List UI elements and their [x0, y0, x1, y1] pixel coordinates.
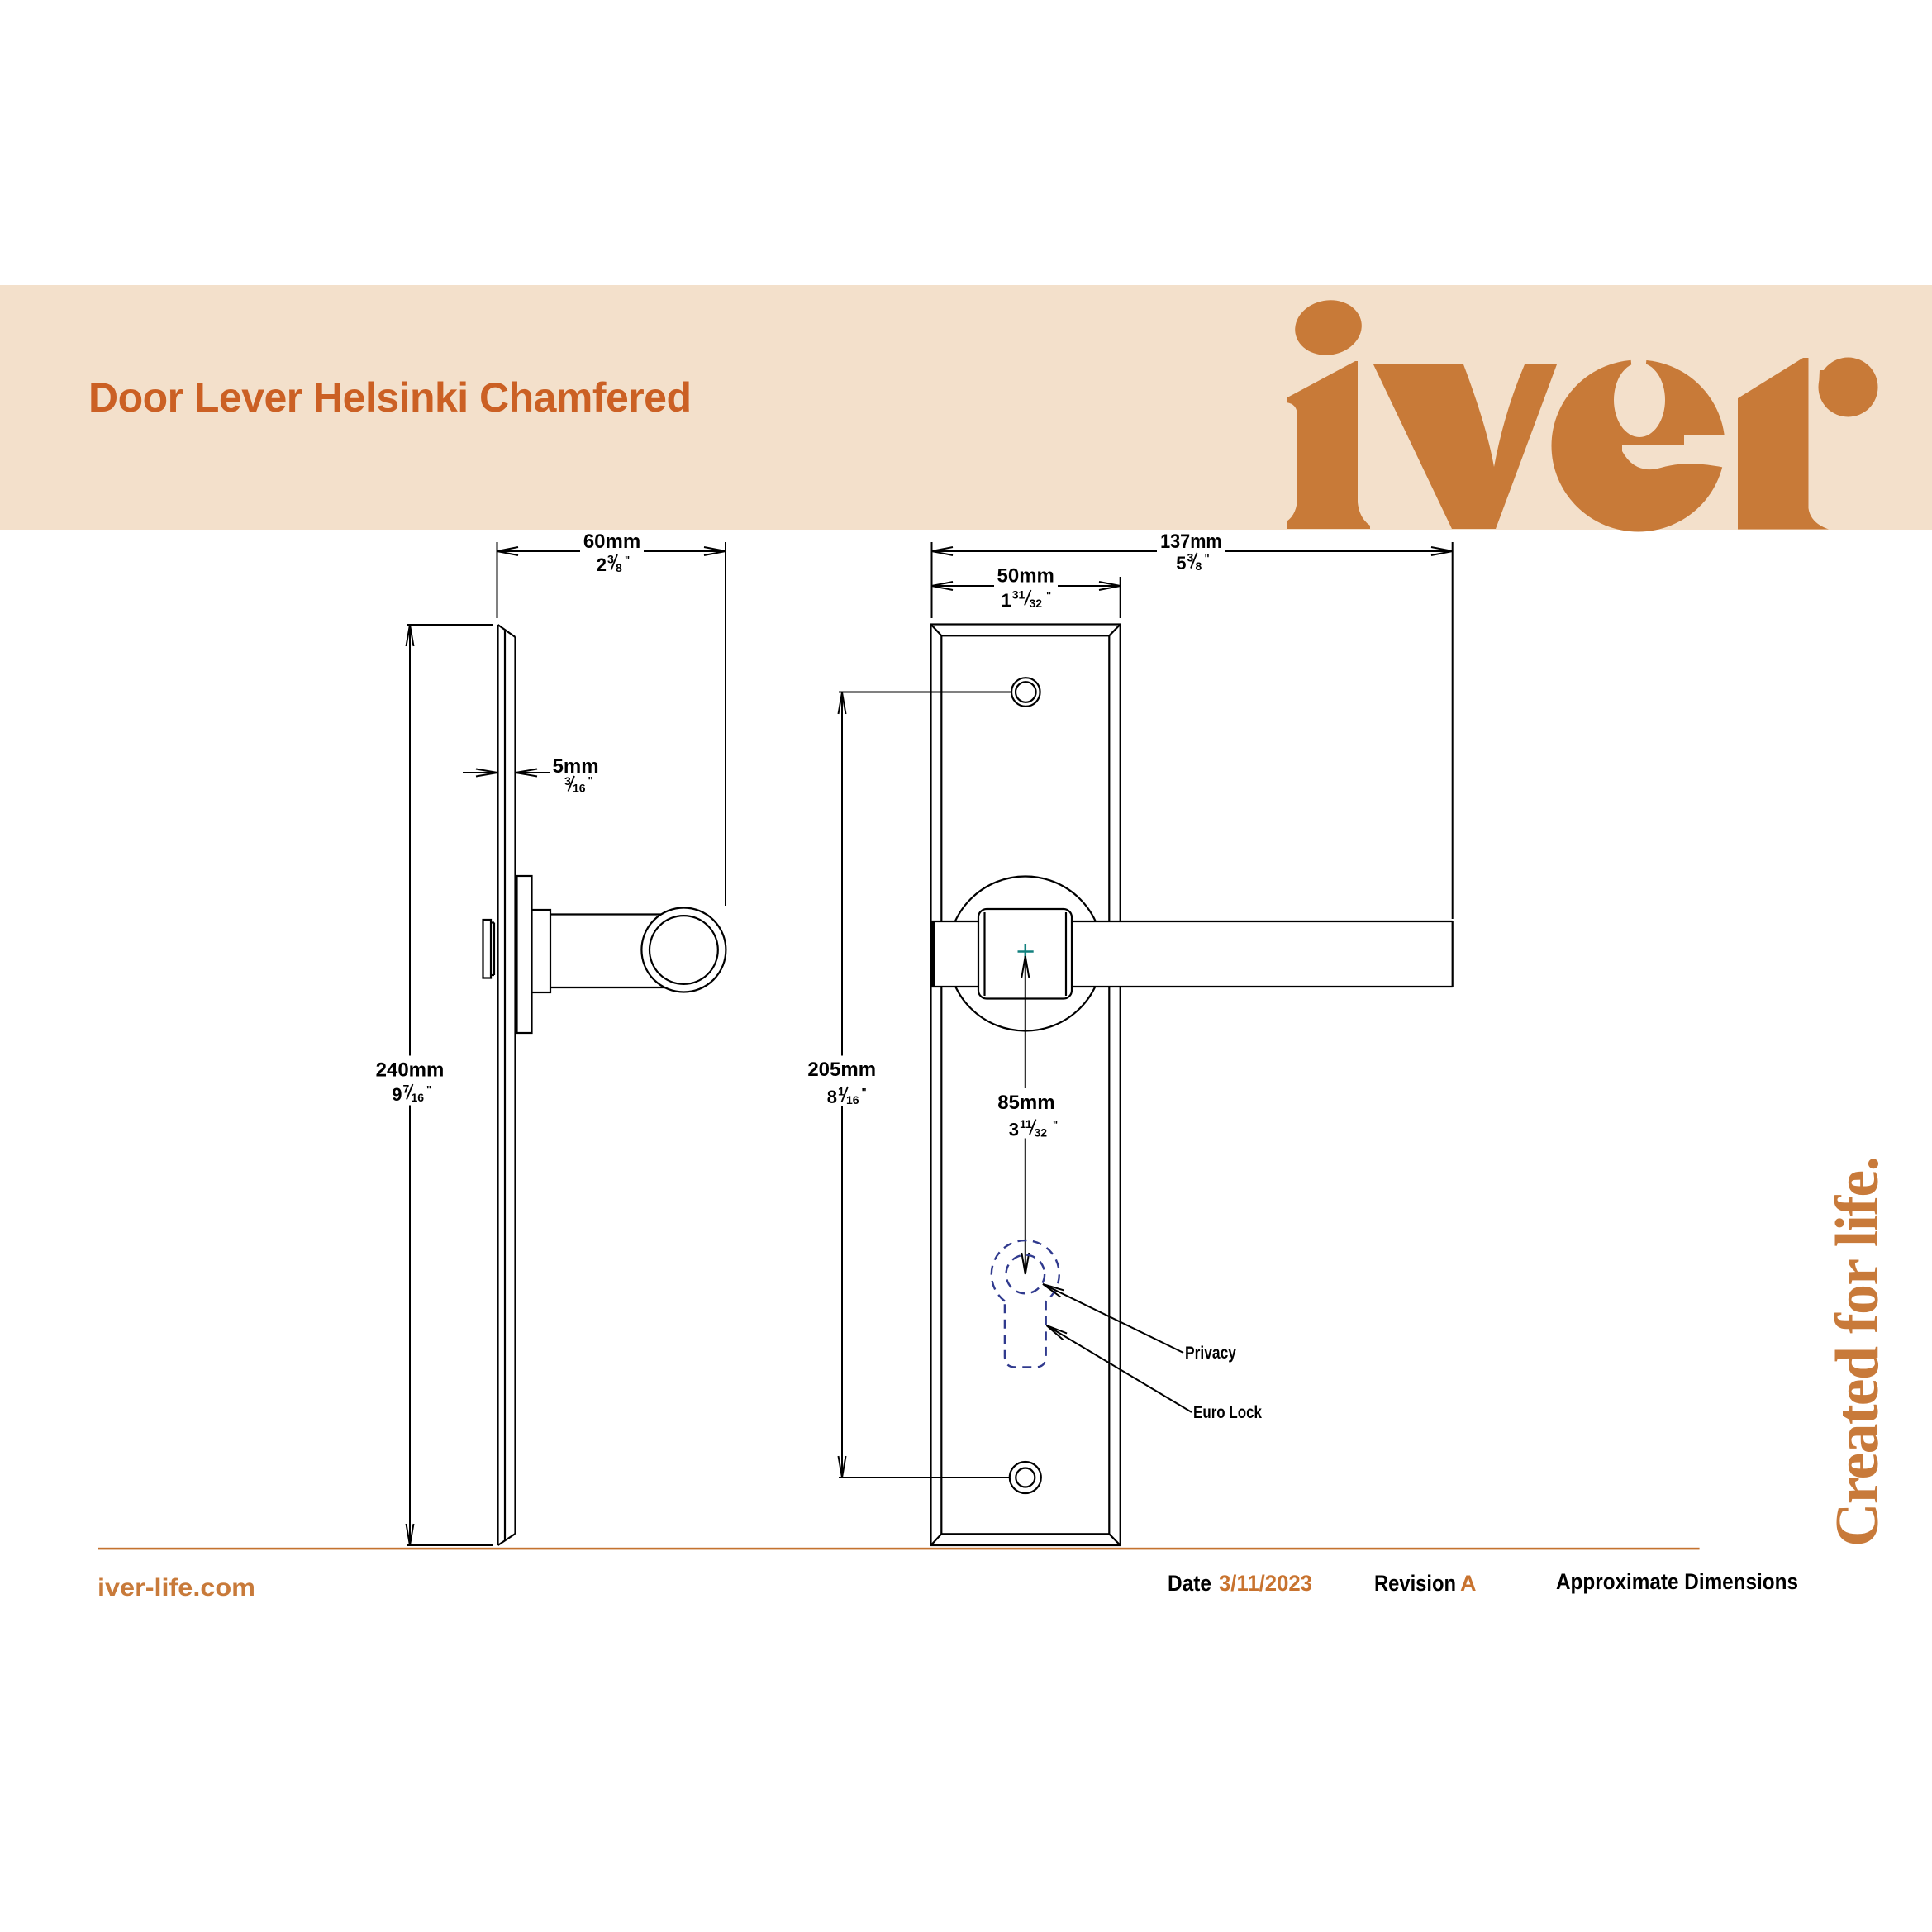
svg-text:Date: Date [1168, 1571, 1211, 1596]
svg-text:iver-life.com: iver-life.com [98, 1574, 255, 1601]
svg-text:": " [1205, 552, 1210, 564]
svg-text:Euro Lock: Euro Lock [1193, 1403, 1262, 1422]
svg-text:16: 16 [846, 1093, 859, 1106]
svg-text:16: 16 [573, 782, 586, 795]
svg-text:A: A [1460, 1571, 1477, 1596]
svg-text:240mm: 240mm [376, 1059, 445, 1082]
svg-text:50mm: 50mm [997, 565, 1054, 588]
svg-text:": " [588, 774, 593, 787]
svg-text:5: 5 [1176, 553, 1186, 573]
svg-text:60mm: 60mm [583, 531, 640, 553]
svg-text:3: 3 [1009, 1120, 1019, 1140]
svg-text:": " [1046, 589, 1051, 602]
svg-text:Created for life.: Created for life. [1824, 1156, 1892, 1547]
svg-text:1: 1 [1001, 590, 1011, 611]
svg-text:": " [426, 1083, 431, 1096]
svg-text:32: 32 [1035, 1126, 1048, 1140]
svg-text:2: 2 [597, 554, 607, 575]
svg-text:8: 8 [616, 561, 622, 574]
svg-text:205mm: 205mm [807, 1059, 876, 1081]
svg-text:": " [1053, 1119, 1058, 1131]
svg-text:31: 31 [1012, 588, 1025, 602]
svg-text:Door Lever Helsinki Chamfered: Door Lever Helsinki Chamfered [88, 374, 692, 421]
svg-text:3/11/2023: 3/11/2023 [1219, 1571, 1312, 1596]
svg-text:16: 16 [412, 1091, 425, 1104]
svg-text:11: 11 [1020, 1117, 1032, 1130]
svg-text:": " [625, 554, 630, 566]
svg-text:9: 9 [392, 1084, 402, 1105]
svg-text:": " [862, 1086, 867, 1098]
svg-text:8: 8 [1196, 559, 1202, 573]
svg-text:85mm: 85mm [997, 1092, 1054, 1114]
svg-text:Approximate Dimensions: Approximate Dimensions [1556, 1569, 1798, 1594]
svg-text:8: 8 [827, 1087, 837, 1107]
svg-text:Privacy: Privacy [1185, 1344, 1236, 1363]
svg-text:Revision: Revision [1374, 1571, 1456, 1596]
svg-text:32: 32 [1030, 597, 1043, 610]
svg-text:137mm: 137mm [1160, 531, 1222, 553]
